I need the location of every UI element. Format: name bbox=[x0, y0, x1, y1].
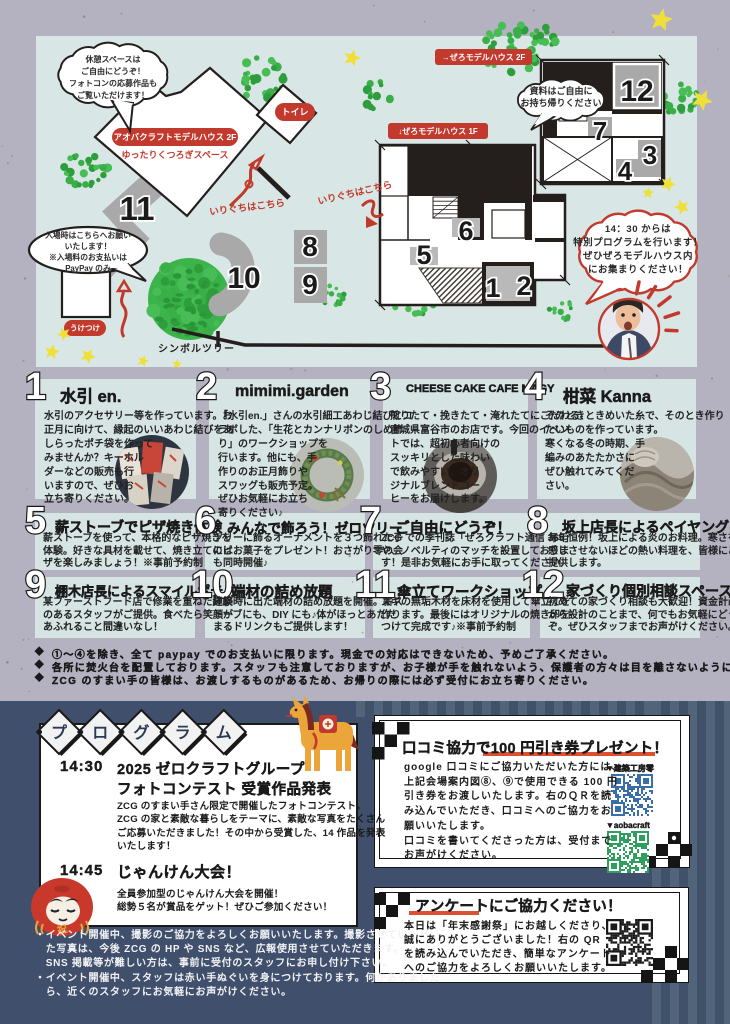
svg-text:2: 2 bbox=[516, 271, 531, 301]
svg-text:7: 7 bbox=[593, 116, 607, 146]
svg-text:8: 8 bbox=[302, 231, 318, 262]
svg-text:※入場料のお支払いは: ※入場料のお支払いは bbox=[49, 252, 127, 262]
svg-text:6: 6 bbox=[458, 216, 473, 246]
svg-text:ぜひぜろモデルハウス内: ぜひぜろモデルハウス内 bbox=[583, 250, 693, 262]
svg-text:14：30 からは: 14：30 からは bbox=[605, 224, 671, 235]
svg-text:トイレ: トイレ bbox=[281, 107, 308, 117]
svg-text:9: 9 bbox=[302, 269, 318, 300]
svg-text:休憩スペースは: 休憩スペースは bbox=[84, 54, 140, 64]
svg-text:にお集まりください！: にお集まりください！ bbox=[588, 264, 688, 276]
svg-text:プ: プ bbox=[51, 723, 68, 742]
svg-text:ご自由にどうぞ！: ご自由にどうぞ！ bbox=[81, 66, 145, 76]
svg-text:アオバクラフトモデルハウス 2F: アオバクラフトモデルハウス 2F bbox=[114, 132, 237, 142]
svg-text:入場時はこちらへお願い: 入場時はこちらへお願い bbox=[44, 230, 131, 240]
svg-text:特別プログラムを行います！: 特別プログラムを行います！ bbox=[573, 237, 703, 249]
svg-text:12: 12 bbox=[620, 75, 653, 108]
svg-text:お持ち帰りください: お持ち帰りください bbox=[520, 97, 601, 108]
svg-text:いたします！: いたします！ bbox=[65, 241, 112, 251]
svg-text:11: 11 bbox=[120, 190, 155, 227]
svg-text:ゆったりくつろぎスペース: ゆったりくつろぎスペース bbox=[122, 149, 229, 160]
svg-text:1: 1 bbox=[485, 273, 500, 303]
svg-text:シンボルツリー: シンボルツリー bbox=[158, 342, 235, 355]
svg-text:ム: ム bbox=[216, 725, 232, 742]
svg-text:↓ぜろモデルハウス 1F: ↓ぜろモデルハウス 1F bbox=[398, 126, 478, 136]
svg-text:→ぜろモデルハウス 2F: →ぜろモデルハウス 2F bbox=[442, 52, 526, 62]
svg-text:3: 3 bbox=[643, 140, 657, 170]
svg-text:10: 10 bbox=[227, 262, 260, 295]
svg-text:5: 5 bbox=[416, 240, 431, 270]
svg-text:ラ: ラ bbox=[175, 725, 191, 742]
svg-text:いりぐちはこちら: いりぐちはこちら bbox=[209, 198, 286, 218]
svg-text:フォトコンの応募作品も: フォトコンの応募作品も bbox=[69, 78, 157, 88]
svg-text:ロ: ロ bbox=[92, 725, 108, 742]
svg-text:グ: グ bbox=[133, 723, 149, 742]
svg-text:うけつけ: うけつけ bbox=[70, 324, 100, 333]
svg-text:資料はご自由に: 資料はご自由に bbox=[529, 85, 592, 96]
svg-text:PayPay のみ: PayPay のみ bbox=[65, 264, 111, 273]
svg-text:4: 4 bbox=[618, 156, 633, 186]
svg-text:ご覧いただけます！: ご覧いただけます！ bbox=[77, 90, 149, 100]
